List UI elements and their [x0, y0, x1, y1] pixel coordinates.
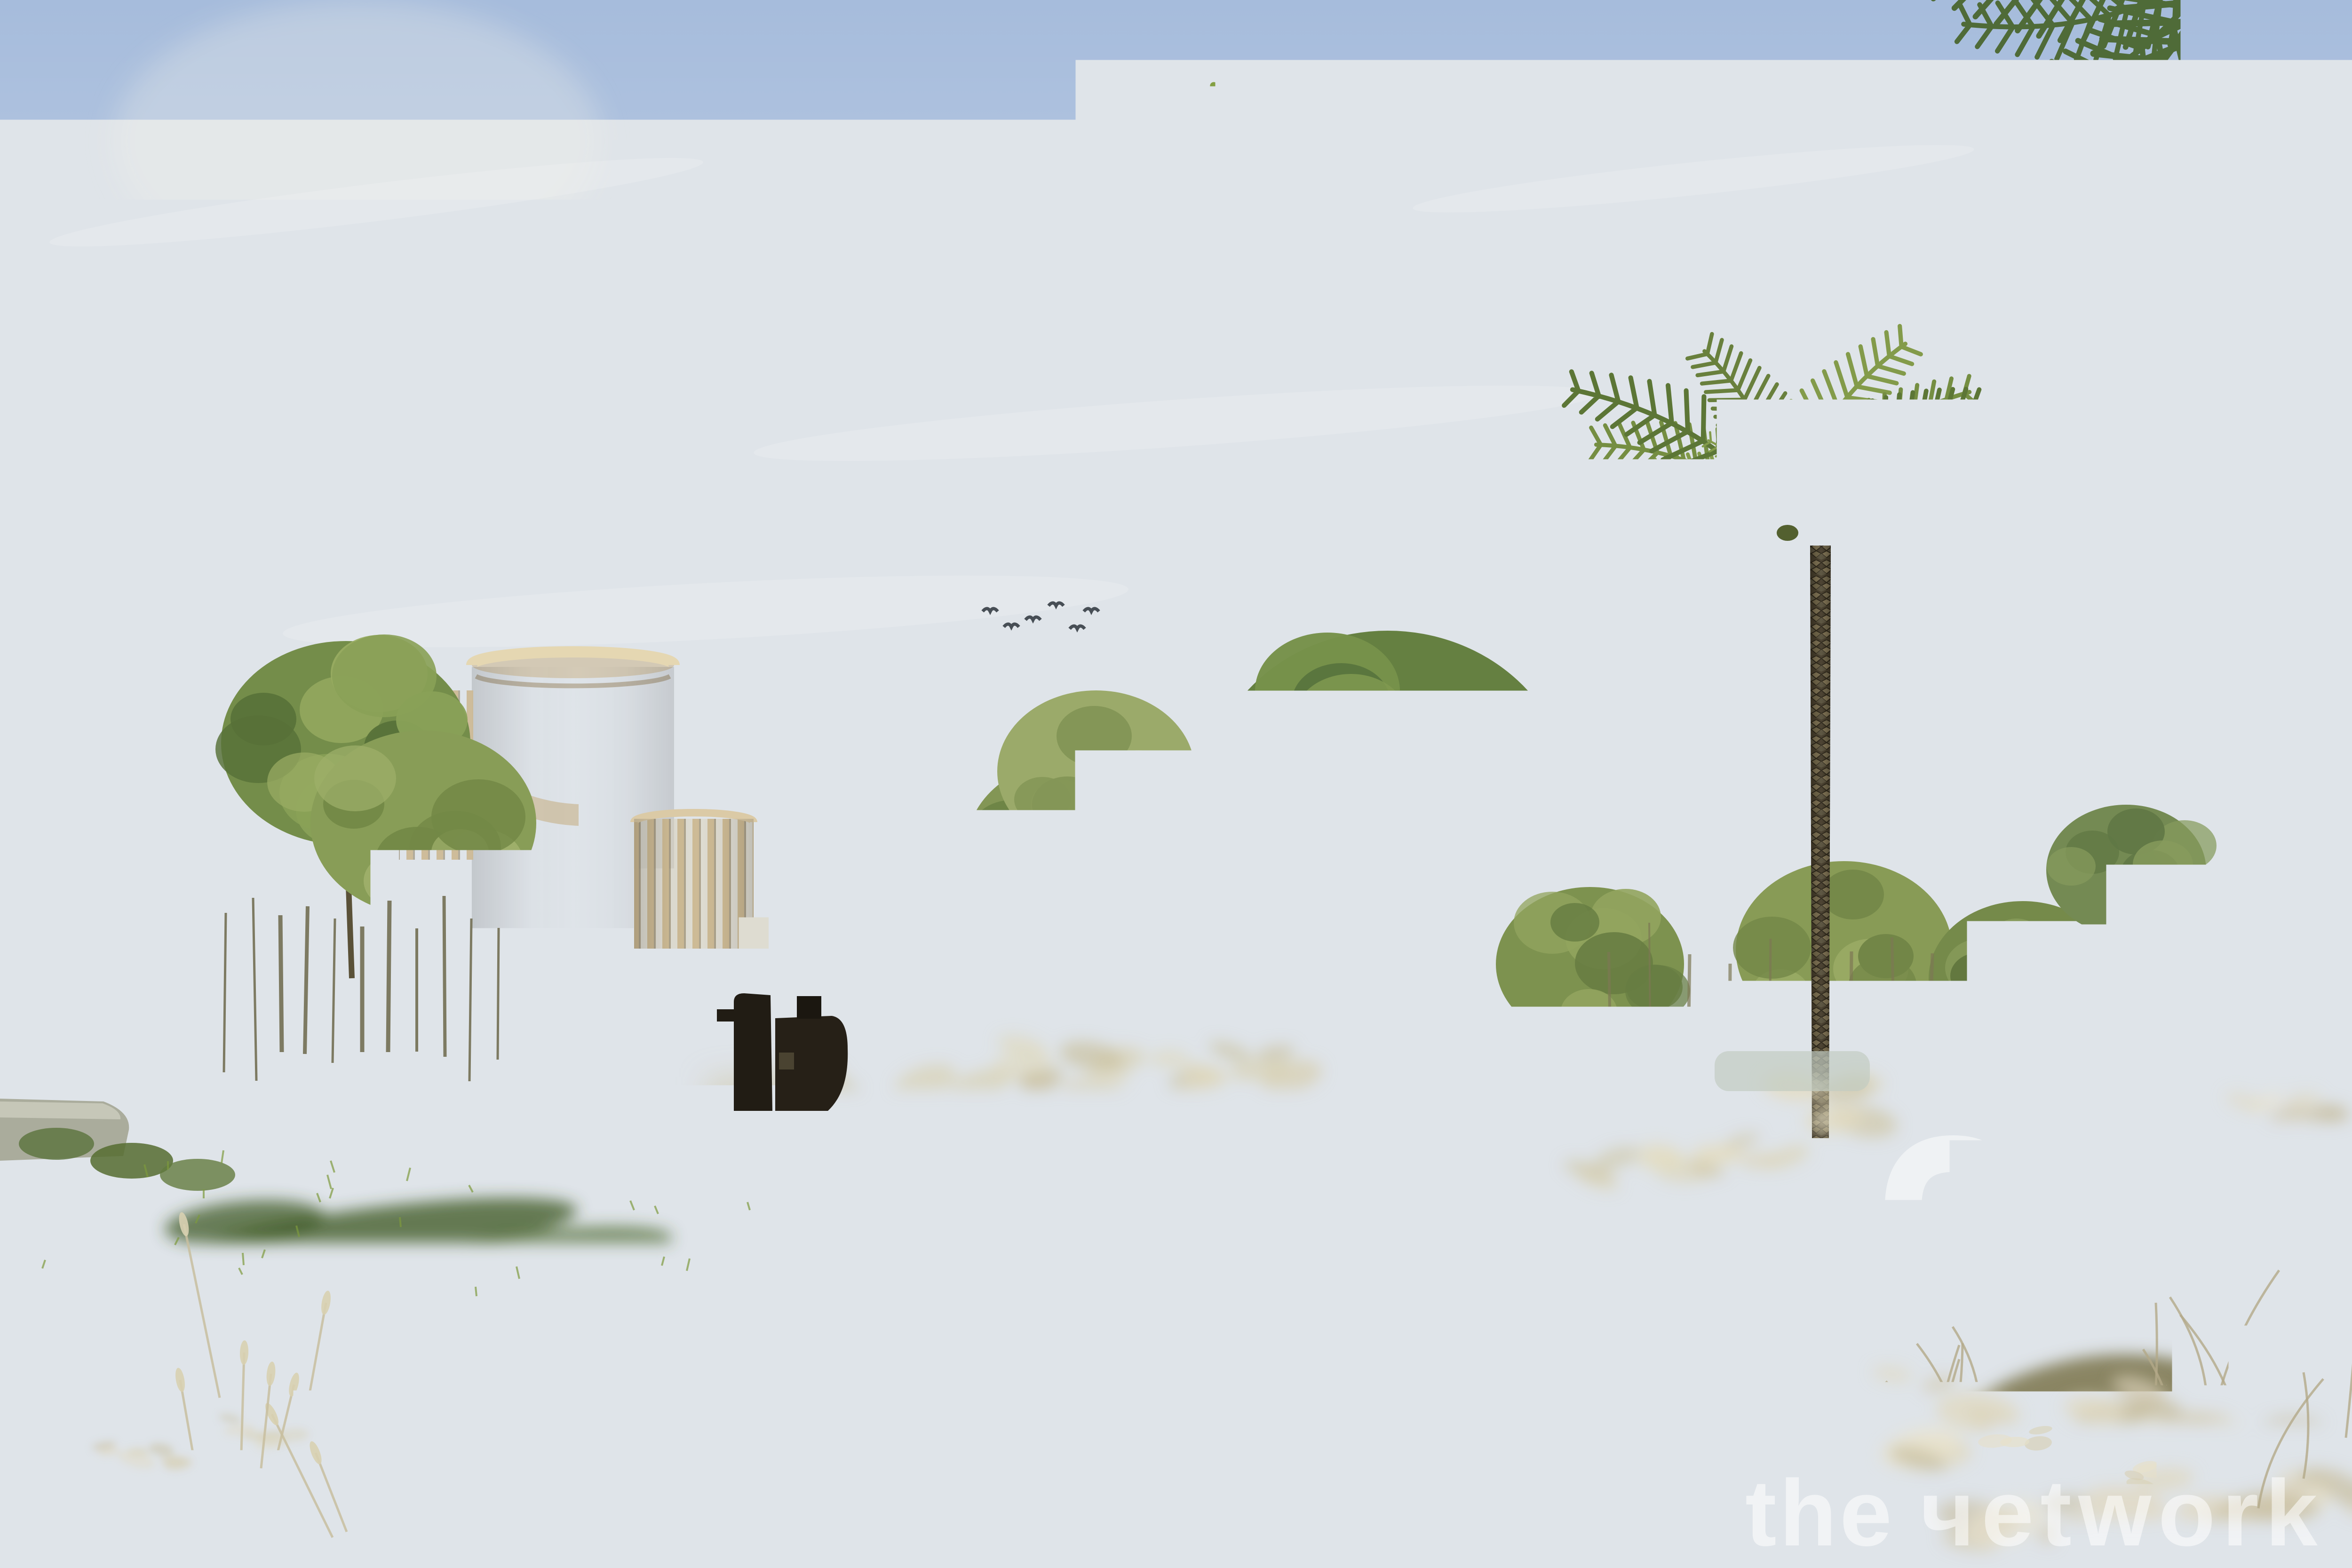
svg-text:the: the — [1745, 1461, 1895, 1566]
svg-text:the чetwork: the чetwork — [52, 1466, 628, 1568]
svg-text:чetwork: чetwork — [1920, 1461, 2324, 1566]
